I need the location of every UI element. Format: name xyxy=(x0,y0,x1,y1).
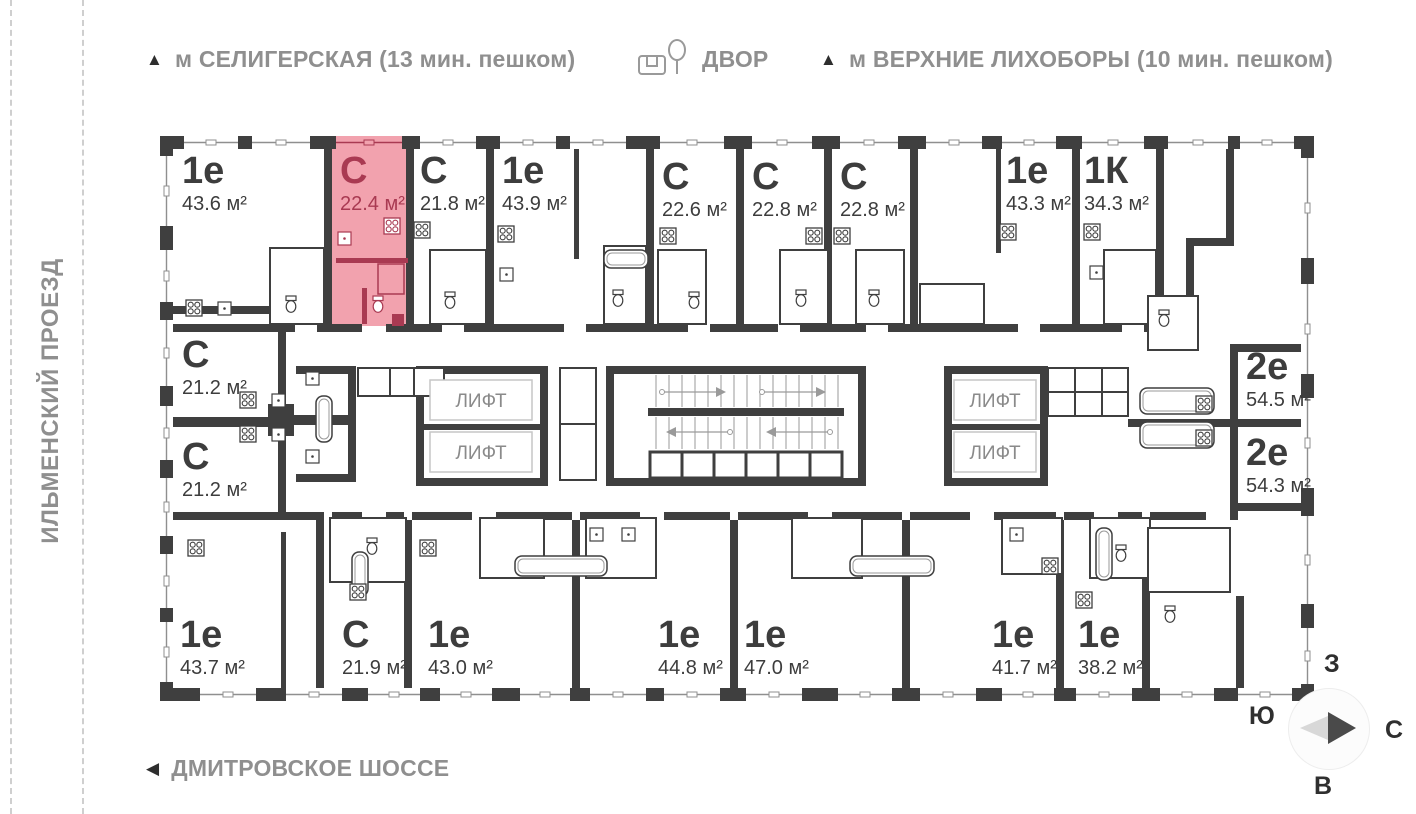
stove-icon xyxy=(1196,396,1212,412)
compass-south: Ю xyxy=(1249,702,1275,731)
stove-icon xyxy=(834,228,850,244)
compass-west: З xyxy=(1324,650,1340,679)
wc-icon xyxy=(1165,606,1175,622)
unit-bottom-5[interactable]: 1е47.0 м² xyxy=(744,616,809,678)
wc-icon xyxy=(445,292,455,308)
unit-top-7[interactable]: С22.8 м² xyxy=(840,158,905,220)
stove-icon xyxy=(186,300,202,316)
sink-icon xyxy=(622,528,635,541)
sink-icon xyxy=(218,302,231,315)
elevator-label: ЛИФТ xyxy=(455,391,507,412)
wc-icon xyxy=(373,296,383,312)
unit-top-9[interactable]: 1К34.3 м² xyxy=(1084,152,1149,214)
stove-icon xyxy=(1042,558,1058,574)
unit-top-1[interactable]: 1е43.6 м² xyxy=(182,152,247,214)
unit-top-2-highlighted[interactable]: С22.4 м² xyxy=(340,152,405,214)
unit-bottom-7[interactable]: 1е38.2 м² xyxy=(1078,616,1143,678)
stove-icon xyxy=(660,228,676,244)
unit-right-1[interactable]: 2е54.5 м² xyxy=(1246,348,1311,410)
wc-icon xyxy=(869,290,879,306)
sink-icon xyxy=(306,450,319,463)
elevator-label: ЛИФТ xyxy=(969,443,1021,464)
wc-icon xyxy=(613,290,623,306)
stove-icon xyxy=(1000,224,1016,240)
stove-icon xyxy=(414,222,430,238)
wc-icon xyxy=(286,296,296,312)
unit-top-8[interactable]: 1е43.3 м² xyxy=(1006,152,1071,214)
sink-icon xyxy=(272,428,285,441)
stove-icon xyxy=(384,218,400,234)
unit-top-3[interactable]: С21.8 м² xyxy=(420,152,485,214)
sink-icon xyxy=(306,372,319,385)
stove-icon xyxy=(420,540,436,556)
wc-icon xyxy=(1116,545,1126,561)
unit-top-4[interactable]: 1е43.9 м² xyxy=(502,152,567,214)
compass-arrow-icon xyxy=(1298,708,1360,748)
unit-right-2[interactable]: 2е54.3 м² xyxy=(1246,434,1311,496)
unit-top-5[interactable]: С22.6 м² xyxy=(662,158,727,220)
unit-bottom-1[interactable]: 1е43.7 м² xyxy=(180,616,245,678)
sink-icon xyxy=(1090,266,1103,279)
floorplan-page: { "header": { "metro_left": {"marker": "… xyxy=(0,0,1416,814)
unit-bottom-2[interactable]: С21.9 м² xyxy=(342,616,407,678)
unit-bottom-4[interactable]: 1е44.8 м² xyxy=(658,616,723,678)
sink-icon xyxy=(338,232,351,245)
sink-icon xyxy=(590,528,603,541)
stove-icon xyxy=(188,540,204,556)
stove-icon xyxy=(498,226,514,242)
wc-icon xyxy=(1159,310,1169,326)
wc-icon xyxy=(689,292,699,308)
unit-left-1[interactable]: С21.2 м² xyxy=(182,336,247,398)
stove-icon xyxy=(1196,430,1212,446)
sink-icon xyxy=(272,394,285,407)
compass-north: С xyxy=(1385,716,1403,745)
floor-plan: ЛИФТ ЛИФТ ЛИФТ ЛИФТ xyxy=(0,0,1416,814)
elevator-label: ЛИФТ xyxy=(969,391,1021,412)
wc-icon xyxy=(367,538,377,554)
unit-bottom-3[interactable]: 1е43.0 м² xyxy=(428,616,493,678)
sink-icon xyxy=(500,268,513,281)
stove-icon xyxy=(350,584,366,600)
compass-east: В xyxy=(1314,772,1332,801)
unit-top-6[interactable]: С22.8 м² xyxy=(752,158,817,220)
stove-icon xyxy=(1084,224,1100,240)
stove-icon xyxy=(1076,592,1092,608)
unit-left-2[interactable]: С21.2 м² xyxy=(182,438,247,500)
stove-icon xyxy=(806,228,822,244)
elevator-label: ЛИФТ xyxy=(455,443,507,464)
wc-icon xyxy=(796,290,806,306)
unit-bottom-6[interactable]: 1е41.7 м² xyxy=(992,616,1057,678)
sink-icon xyxy=(1010,528,1023,541)
